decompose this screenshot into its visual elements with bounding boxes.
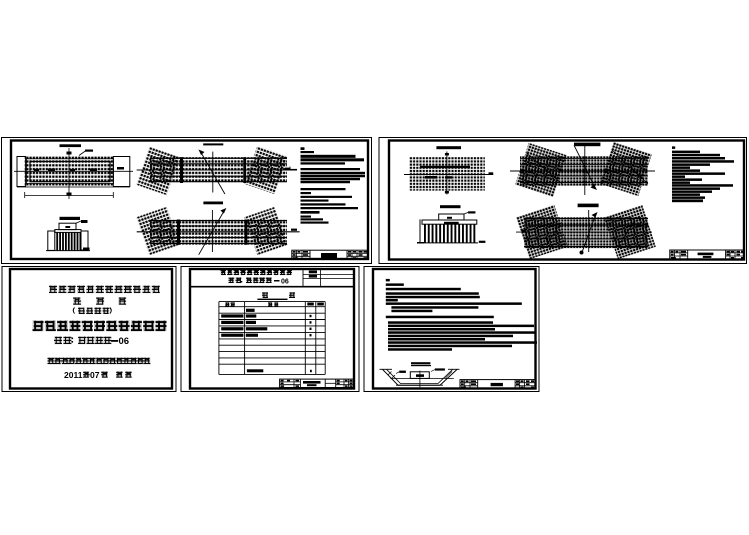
- svg-text:06: 06: [281, 279, 289, 286]
- svg-text:2011: 2011: [64, 370, 83, 380]
- svg-text:07: 07: [90, 370, 100, 380]
- svg-text:06: 06: [119, 336, 130, 347]
